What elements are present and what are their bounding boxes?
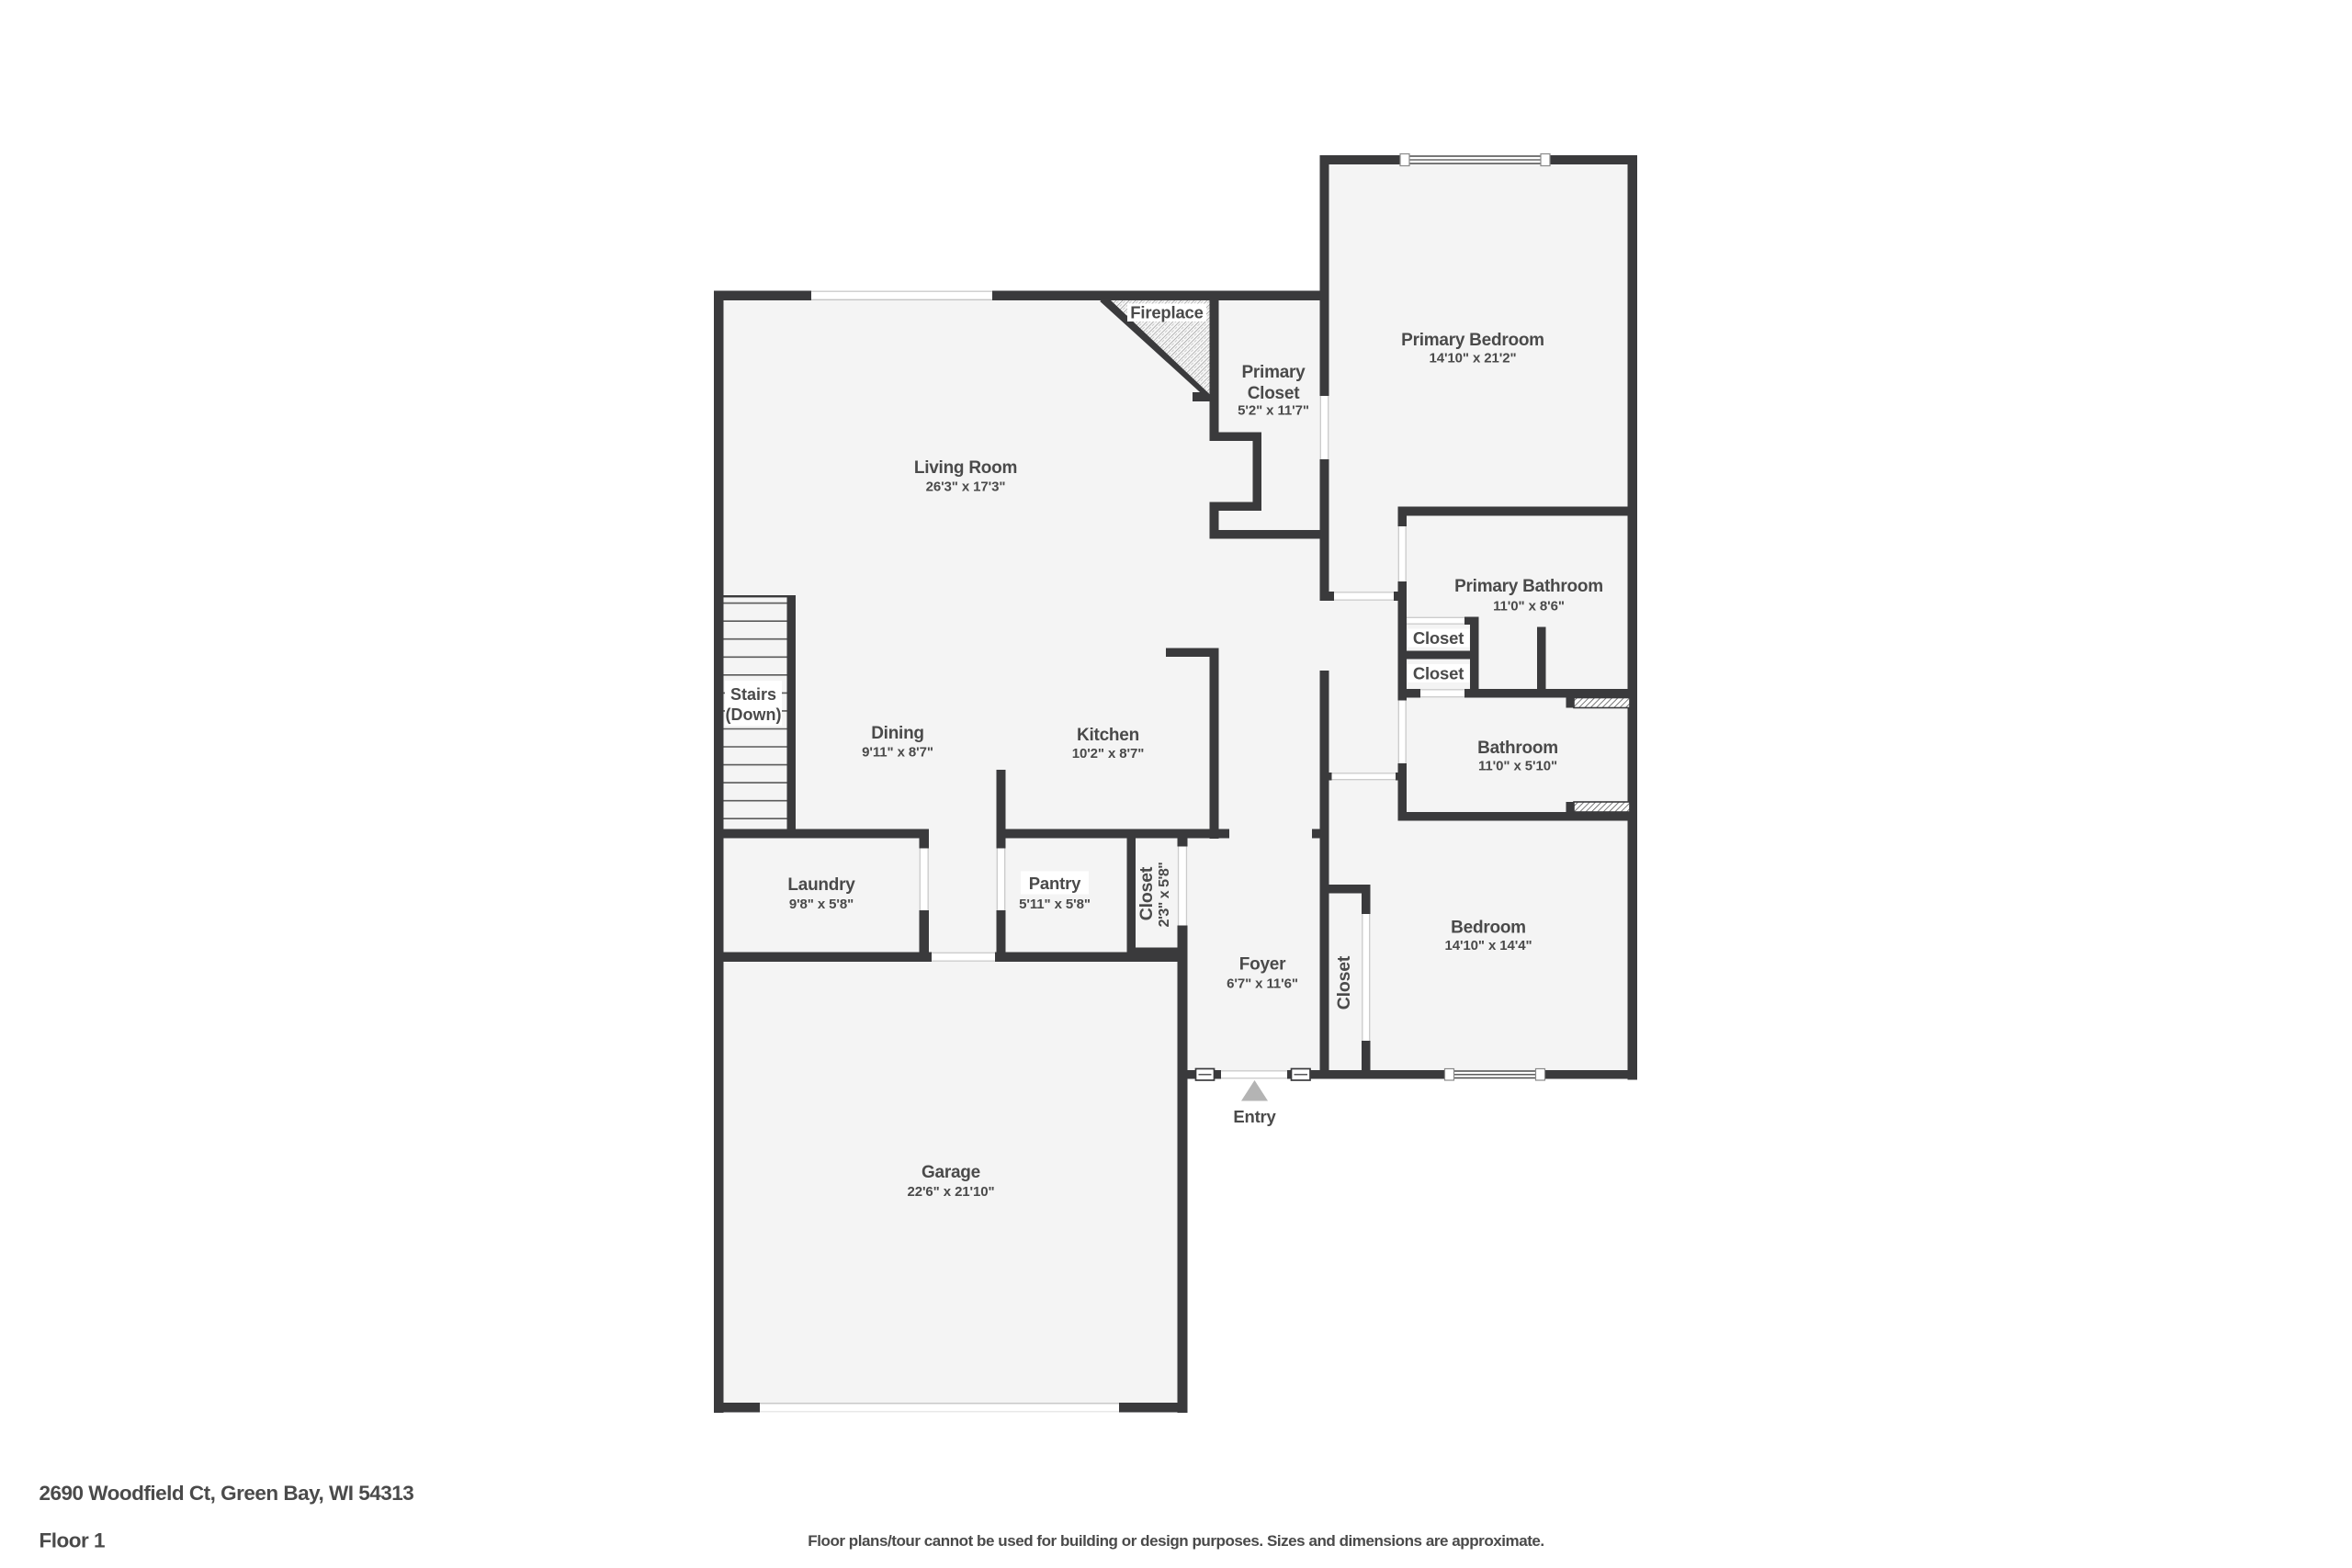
svg-text:Primary Bathroom: Primary Bathroom xyxy=(1454,577,1603,596)
svg-text:14'10" x 14'4": 14'10" x 14'4" xyxy=(1444,938,1532,953)
svg-text:14'10" x 21'2": 14'10" x 21'2" xyxy=(1429,351,1516,367)
svg-text:Kitchen: Kitchen xyxy=(1077,726,1139,745)
svg-text:Primary: Primary xyxy=(1241,363,1306,382)
svg-text:Garage: Garage xyxy=(922,1163,980,1182)
svg-text:9'8" x 5'8": 9'8" x 5'8" xyxy=(789,897,854,912)
svg-text:11'0" x 8'6": 11'0" x 8'6" xyxy=(1493,599,1565,615)
svg-text:10'2" x 8'7": 10'2" x 8'7" xyxy=(1072,746,1145,761)
svg-text:6'7" x 11'6": 6'7" x 11'6" xyxy=(1227,976,1298,992)
svg-text:(Down): (Down) xyxy=(726,705,782,724)
svg-text:Closet: Closet xyxy=(1413,664,1464,683)
svg-text:Closet: Closet xyxy=(1334,955,1354,1010)
svg-text:5'11" x 5'8": 5'11" x 5'8" xyxy=(1019,897,1091,912)
svg-text:Bathroom: Bathroom xyxy=(1477,739,1558,758)
svg-text:Primary Bedroom: Primary Bedroom xyxy=(1401,331,1544,350)
svg-text:Closet: Closet xyxy=(1413,628,1464,648)
svg-text:11'0" x 5'10": 11'0" x 5'10" xyxy=(1478,759,1557,774)
svg-text:Fireplace: Fireplace xyxy=(1130,303,1203,322)
svg-text:Floor plans/tour cannot be use: Floor plans/tour cannot be used for buil… xyxy=(808,1532,1543,1550)
svg-text:9'11" x 8'7": 9'11" x 8'7" xyxy=(862,745,933,761)
svg-text:Closet: Closet xyxy=(1136,866,1157,920)
svg-text:Floor 1: Floor 1 xyxy=(40,1529,106,1552)
svg-text:2690 Woodfield Ct, Green Bay,: 2690 Woodfield Ct, Green Bay, WI 54313 xyxy=(40,1482,414,1505)
svg-text:22'6" x 21'10": 22'6" x 21'10" xyxy=(907,1184,994,1200)
svg-text:Laundry: Laundry xyxy=(787,875,855,895)
svg-text:Pantry: Pantry xyxy=(1029,874,1081,893)
svg-text:Living Room: Living Room xyxy=(914,458,1017,478)
svg-text:2'3" x 5'8": 2'3" x 5'8" xyxy=(1157,863,1172,928)
svg-text:Bedroom: Bedroom xyxy=(1451,919,1526,938)
svg-text:Closet: Closet xyxy=(1248,384,1300,403)
svg-text:Foyer: Foyer xyxy=(1239,955,1286,975)
svg-text:Stairs: Stairs xyxy=(730,685,776,704)
svg-text:Entry: Entry xyxy=(1233,1107,1276,1126)
svg-text:26'3" x 17'3": 26'3" x 17'3" xyxy=(926,479,1006,495)
svg-text:5'2" x 11'7": 5'2" x 11'7" xyxy=(1238,403,1309,419)
svg-text:Dining: Dining xyxy=(871,724,924,743)
